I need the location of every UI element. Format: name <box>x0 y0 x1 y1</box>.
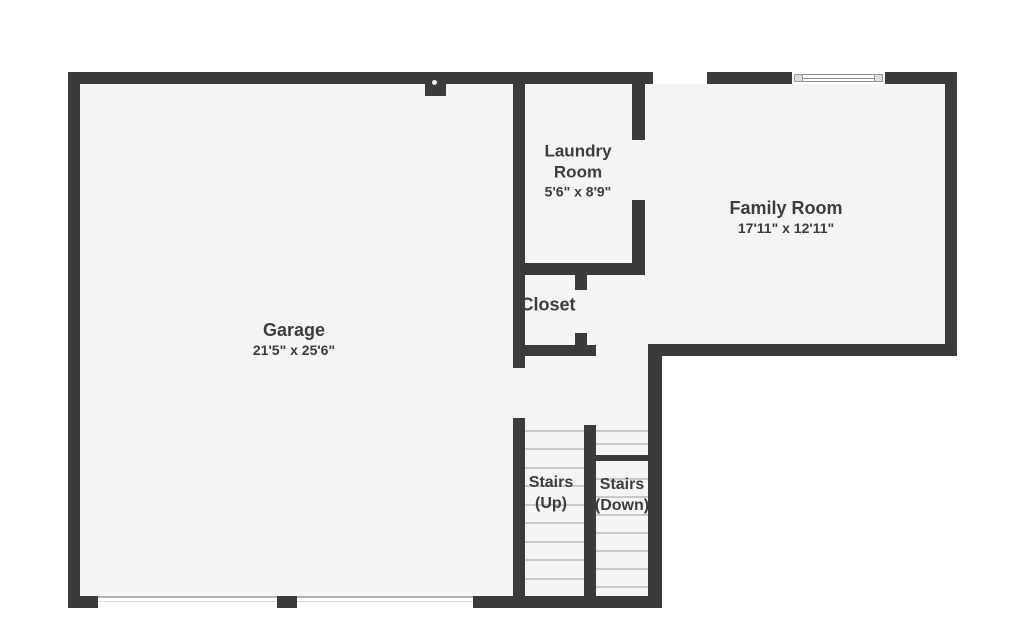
stair-tread <box>596 586 648 588</box>
wall-segment <box>68 72 653 84</box>
fixture-dot-icon <box>432 80 437 85</box>
laundry-dimensions: 5'6" x 8'9" <box>533 183 623 202</box>
stair-tread <box>525 578 584 580</box>
wall-segment <box>473 596 662 608</box>
stair-tread <box>596 443 648 445</box>
stair-tread <box>525 448 584 450</box>
room-label-laundry: Laundry Room 5'6" x 8'9" <box>533 141 623 202</box>
family-name: Family Room <box>729 198 842 219</box>
garage-hall-door-opening <box>513 368 525 418</box>
laundry-door-opening <box>632 140 645 200</box>
window-cap-icon <box>794 74 803 82</box>
wall-segment <box>648 344 957 356</box>
stair-tread <box>525 559 584 561</box>
wall-fixture-icon <box>425 78 446 96</box>
room-label-garage: Garage 21'5" x 25'6" <box>253 320 335 360</box>
window <box>792 72 885 84</box>
wall-segment <box>945 72 957 352</box>
stair-tread <box>525 430 584 432</box>
closet-door-opening <box>575 290 587 333</box>
stair-tread <box>525 522 584 524</box>
wall-segment <box>68 72 80 608</box>
wall-segment <box>632 200 645 270</box>
wall-segment <box>584 425 596 608</box>
laundry-name: Laundry Room <box>533 141 623 183</box>
family-room-top-door-opening <box>653 72 707 84</box>
wall-segment <box>513 345 596 356</box>
stair-tread <box>596 550 648 552</box>
wall-segment <box>632 84 645 140</box>
garage-door-line <box>297 596 473 602</box>
wall-segment <box>513 72 525 368</box>
garage-name: Garage <box>253 320 335 341</box>
room-label-stairs-down: Stairs (Down) <box>592 474 652 516</box>
stair-tread <box>596 430 648 432</box>
floorplan: Garage 21'5" x 25'6" Laundry Room 5'6" x… <box>0 0 1024 633</box>
room-label-family: Family Room 17'11" x 12'11" <box>729 198 842 238</box>
wall-segment <box>513 263 645 275</box>
stair-tread <box>525 541 584 543</box>
window-midline-icon <box>796 78 881 79</box>
stairs-down-edge <box>596 455 648 461</box>
stair-tread <box>596 532 648 534</box>
wall-segment <box>68 596 98 608</box>
family-dimensions: 17'11" x 12'11" <box>729 219 842 238</box>
stair-tread <box>596 568 648 570</box>
wall-segment <box>707 72 792 84</box>
wall-segment <box>277 596 297 608</box>
stair-tread <box>525 467 584 469</box>
garage-dimensions: 21'5" x 25'6" <box>253 341 335 360</box>
garage-door-line <box>98 596 277 602</box>
window-cap-icon <box>874 74 883 82</box>
room-label-stairs-up: Stairs (Up) <box>520 472 582 514</box>
window-frame-icon <box>795 74 882 82</box>
wall-segment <box>575 275 587 290</box>
room-label-closet: Closet <box>520 295 575 316</box>
closet-name: Closet <box>520 295 575 316</box>
